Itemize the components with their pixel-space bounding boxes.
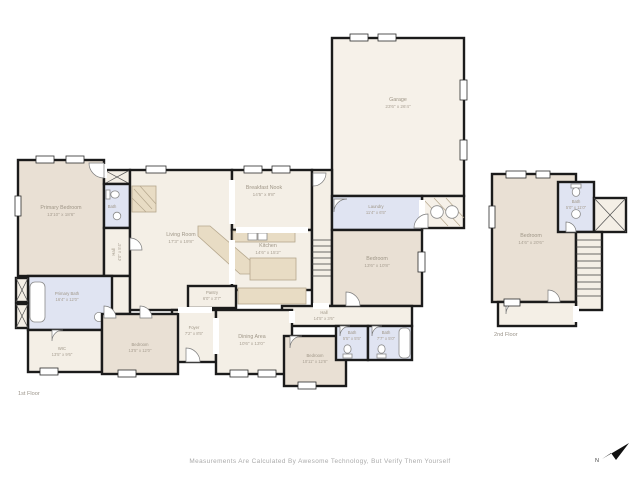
stairs-2nd — [576, 232, 602, 310]
room-bedroom-right: Bedroom 13'6" x 10'8" — [332, 230, 422, 306]
room-wic: WIC 13'5" x 9'6" — [28, 330, 102, 372]
room-label: Primary Bedroom — [40, 205, 82, 211]
room-dims: 7'7" x 5'0" — [377, 336, 396, 341]
toilet-icon — [377, 345, 386, 358]
room-bath-right: Bath 7'7" x 5'0" — [368, 326, 412, 360]
room-dims: 16'4" x 12'0" — [56, 297, 79, 302]
compass-letter: N — [595, 458, 599, 464]
room-breakfast-nook: Breakfast Nook 14'5" x 9'8" — [232, 170, 312, 230]
room-label: Foyer — [189, 325, 200, 330]
room-dims: 5'5" x 5'5" — [343, 336, 362, 341]
room-dims: 7'2" x 8'5" — [185, 331, 204, 336]
kitchen-sink-icon — [258, 233, 267, 240]
room-dims: 14'5" x 9'8" — [253, 192, 276, 197]
room-dims: 13'5" x 9'6" — [52, 352, 73, 357]
room-label: Breakfast Nook — [246, 185, 283, 191]
room-dims: 14'6" x 15'2" — [255, 250, 281, 255]
room-label: Laundry — [368, 204, 384, 209]
disclaimer-text: Measurements Are Calculated By Awesome T… — [189, 458, 450, 465]
room-dims: 10'11" x 12'8" — [303, 359, 328, 364]
room-dims: 10'6" x 13'0" — [239, 341, 265, 346]
floor-plan-page: Garage 23'6" x 26'4" Primary Bedroom 13'… — [0, 0, 640, 480]
room-label: Bedroom — [520, 233, 542, 239]
first-floor-label: 1st Floor — [18, 391, 40, 397]
room-label: Hall — [320, 310, 327, 315]
room-label: Garage — [389, 97, 407, 103]
room-pantry: Pantry 6'0" x 3'7" — [188, 286, 236, 308]
room-dims: 14'5" x 3'6" — [314, 316, 335, 321]
sink-icon — [572, 210, 581, 219]
room-label: Bedroom — [366, 256, 388, 262]
second-floor-label: 2nd Floor — [494, 332, 518, 338]
room-hall-front: Hall 4'0" x 5'4" — [104, 228, 130, 276]
room-dims: 6'0" x 3'7" — [203, 296, 222, 301]
closet-front — [104, 170, 130, 184]
closet-left-1 — [16, 278, 28, 302]
room-laundry: Laundry 11'4" x 6'5" — [332, 196, 422, 230]
room-garage: Garage 23'6" x 26'4" — [332, 38, 464, 196]
room-bath-2nd: Bath 5'0" x 11'0" — [558, 182, 594, 232]
room-dining-area: Dining Area 10'6" x 13'0" — [216, 310, 292, 374]
room-label: Living Room — [166, 232, 196, 238]
room-dims: 23'6" x 26'4" — [385, 104, 411, 109]
room-dims: 4'0" x 5'4" — [117, 242, 122, 261]
room-label: Primary Bath — [55, 291, 80, 296]
room-dims: 14'6" x 20'6" — [518, 240, 544, 245]
room-dims: 13'5" x 12'0" — [129, 348, 152, 353]
room-hall-main: Hall 14'5" x 3'6" — [282, 306, 412, 326]
room-label: Hall — [111, 248, 116, 255]
room-label: Bath — [108, 204, 117, 209]
closet-2nd — [594, 198, 626, 232]
room-bedroom-left: Bedroom 13'5" x 12'0" — [102, 314, 178, 374]
room-label: Dining Area — [238, 334, 265, 340]
kitchen-sink-icon — [248, 233, 257, 240]
room-label: WIC — [58, 346, 66, 351]
bathtub-icon — [30, 282, 45, 322]
room-label: Bath — [572, 199, 581, 204]
toilet-icon — [106, 190, 119, 199]
room-dims: 11'4" x 6'5" — [366, 210, 387, 215]
room-bath-front: Bath — [104, 184, 130, 228]
room-label: Bath — [348, 330, 357, 335]
room-label: Bedroom — [132, 342, 150, 347]
room-primary-bedroom: Primary Bedroom 13'10" x 18'6" — [18, 160, 104, 276]
compass-icon: N — [595, 443, 629, 464]
toilet-icon — [343, 345, 352, 358]
room-primary-bath: Primary Bath 16'4" x 12'0" — [28, 276, 112, 330]
room-label: Bedroom — [307, 353, 325, 358]
sink-icon — [113, 212, 121, 220]
room-dims: 17'3" x 19'8" — [168, 239, 194, 244]
stair-corridor — [312, 170, 332, 306]
bathtub-icon — [399, 328, 410, 358]
room-dims: 5'0" x 11'0" — [566, 205, 587, 210]
closet-left-2 — [16, 304, 28, 328]
floor-plan-drawing: Garage 23'6" x 26'4" Primary Bedroom 13'… — [0, 0, 640, 480]
kitchen-island — [250, 258, 296, 280]
room-label: Bath — [382, 330, 391, 335]
counter-south — [238, 288, 306, 304]
room-label: Pantry — [206, 290, 219, 295]
fireplace — [132, 186, 156, 212]
toilet-icon — [571, 184, 581, 196]
room-dims: 13'6" x 10'8" — [364, 263, 390, 268]
room-label: Kitchen — [259, 243, 277, 249]
room-dims: 13'10" x 18'6" — [47, 212, 75, 217]
